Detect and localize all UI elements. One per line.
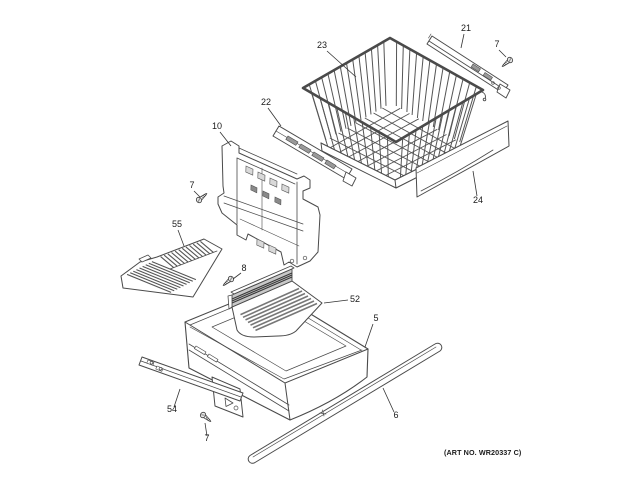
drain-grille [121, 239, 222, 297]
callout-left-screw: 7 [189, 180, 194, 190]
callout-grille: 55 [172, 219, 182, 229]
diagram-canvas: 23 21 7 22 10 7 55 8 52 5 24 54 7 6 (ART… [0, 0, 640, 480]
leader-front-panel [473, 171, 477, 196]
screw-top-right-icon [500, 56, 513, 68]
leader-top-slide-rail [461, 34, 464, 48]
callout-shelf-insert: 52 [350, 294, 360, 304]
callout-long-rail: 6 [393, 410, 398, 420]
screw-left-icon [195, 191, 208, 203]
leader-long-rail [383, 388, 394, 412]
exploded-parts-diagram: 23 21 7 22 10 7 55 8 52 5 24 54 7 6 (ART… [0, 0, 640, 480]
callout-mid-slide-rail: 22 [261, 97, 271, 107]
mounting-bracket [218, 141, 320, 267]
art-number: (ART NO. WR20337 C) [444, 448, 522, 457]
leader-shelf-insert [324, 300, 348, 303]
callout-center-screw: 8 [241, 263, 246, 273]
callout-top-slide-rail: 21 [461, 23, 471, 33]
leader-grille [178, 230, 184, 246]
leader-top-screw [499, 50, 506, 57]
callout-front-panel: 24 [473, 195, 483, 205]
leader-mid-slide-rail [268, 108, 281, 126]
callout-lower-slide-rail: 54 [167, 404, 177, 414]
callout-lower-screw: 7 [204, 433, 209, 443]
leader-left-screw [194, 191, 200, 197]
screw-bottom-icon [199, 411, 212, 423]
leader-center-screw [233, 273, 241, 279]
callout-top-screw: 7 [494, 39, 499, 49]
leader-drawer-pan [365, 324, 373, 347]
callout-bracket: 10 [212, 121, 222, 131]
callout-basket: 23 [317, 40, 327, 50]
callout-drawer-pan: 5 [373, 313, 378, 323]
screw-center-icon [221, 275, 234, 287]
